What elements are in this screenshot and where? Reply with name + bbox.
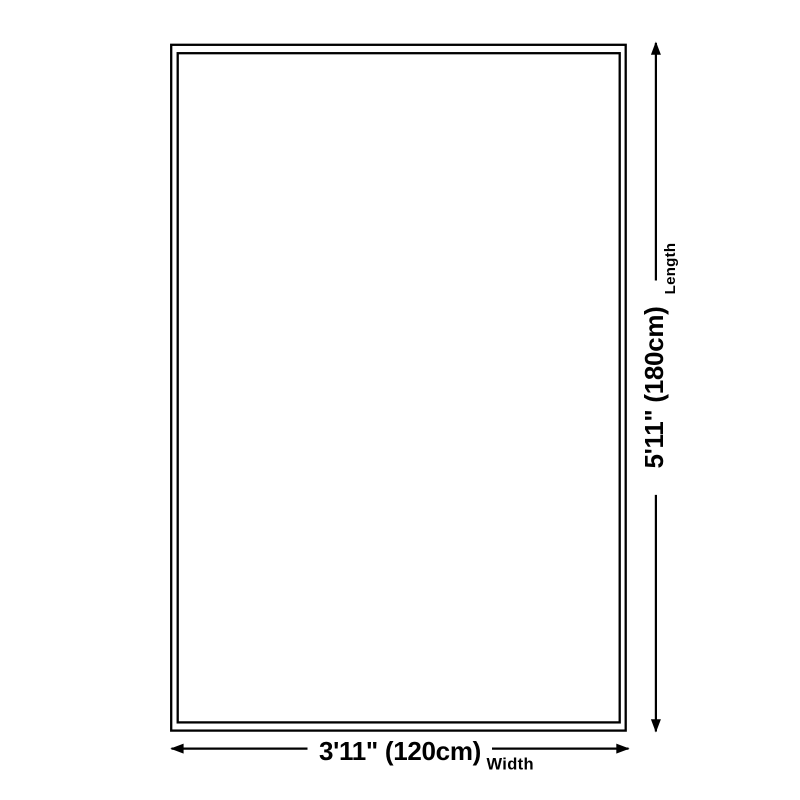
svg-text:5'11" (180cm): 5'11" (180cm): [639, 306, 669, 468]
svg-text:3'11" (120cm): 3'11" (120cm): [319, 736, 481, 766]
svg-text:Width: Width: [487, 756, 534, 774]
svg-text:Length: Length: [662, 243, 679, 295]
